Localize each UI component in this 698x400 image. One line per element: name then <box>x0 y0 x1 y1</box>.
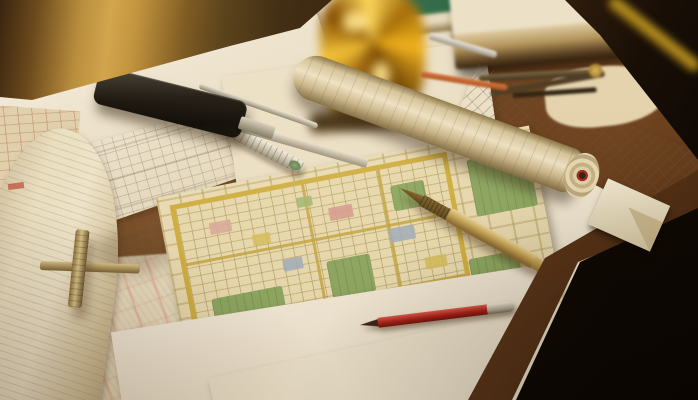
photo-scene: Vintage city maps, rolled blueprints and… <box>0 0 698 400</box>
ruler-glint <box>287 159 302 173</box>
map-block <box>209 219 233 235</box>
map-block <box>252 232 272 246</box>
map-block <box>295 195 313 208</box>
map-block <box>388 224 416 243</box>
map-block <box>328 204 354 221</box>
map-block <box>282 256 304 272</box>
map-block <box>424 254 448 270</box>
brass-glint <box>342 12 368 32</box>
